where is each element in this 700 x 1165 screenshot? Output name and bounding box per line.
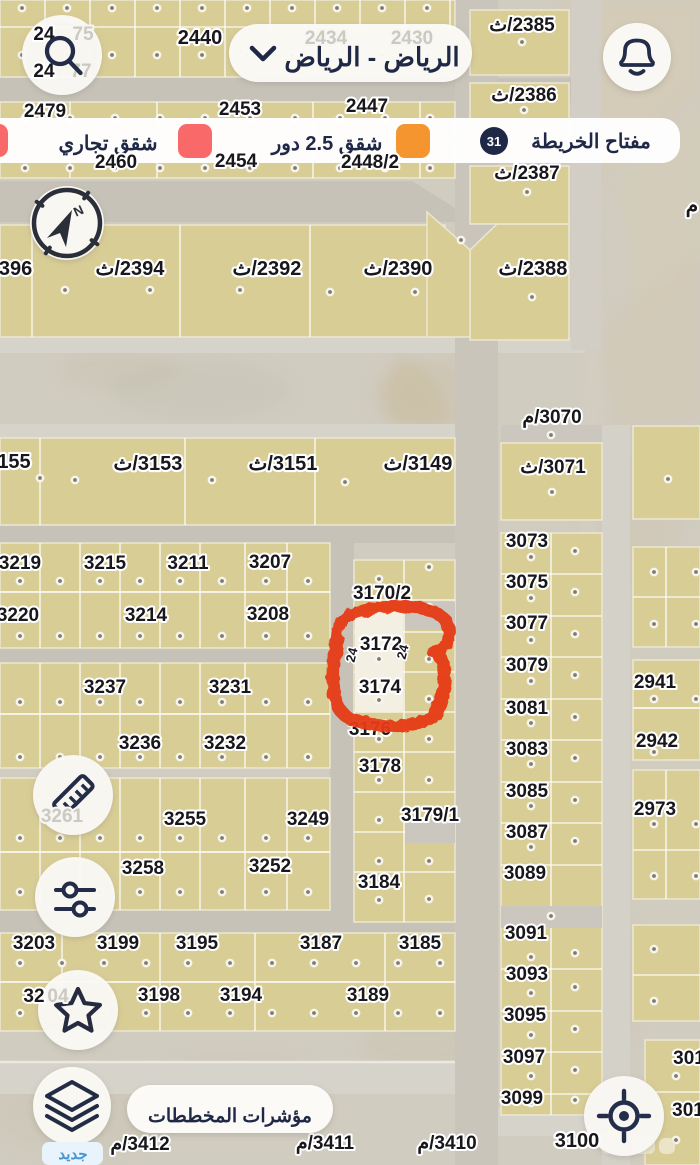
svg-text:ث/3151: ث/3151	[249, 453, 318, 475]
svg-text:3219: 3219	[0, 553, 41, 574]
svg-text:3089: 3089	[504, 863, 546, 884]
svg-text:3255: 3255	[164, 809, 207, 830]
svg-text:301: 301	[673, 1048, 700, 1069]
svg-text:ث/2392: ث/2392	[233, 258, 302, 280]
svg-text:3184: 3184	[358, 872, 401, 893]
svg-text:3194: 3194	[220, 985, 263, 1006]
svg-text:ث/3153: ث/3153	[114, 453, 183, 475]
svg-text:3199: 3199	[97, 933, 139, 954]
svg-text:3261: 3261	[41, 806, 84, 827]
svg-text:3220: 3220	[0, 605, 39, 626]
svg-text:301: 301	[672, 1100, 700, 1121]
svg-text:2440: 2440	[178, 27, 223, 49]
svg-text:مفتاح الخريطة: مفتاح الخريطة	[531, 131, 651, 154]
svg-text:3079: 3079	[506, 655, 548, 676]
svg-text:ث/3149: ث/3149	[384, 453, 453, 475]
svg-text:32: 32	[23, 986, 44, 1007]
svg-text:3075: 3075	[506, 572, 549, 593]
svg-text:3185: 3185	[399, 933, 442, 954]
svg-text:3208: 3208	[247, 604, 289, 625]
svg-text:ث/2390: ث/2390	[364, 258, 433, 280]
svg-text:2434: 2434	[305, 28, 348, 49]
svg-text:3099: 3099	[501, 1088, 543, 1109]
svg-text:ث/2387: ث/2387	[494, 163, 559, 184]
svg-text:3174: 3174	[359, 677, 402, 698]
svg-text:3249: 3249	[287, 809, 329, 830]
svg-text:2973: 2973	[634, 799, 676, 820]
svg-text:م: م	[686, 195, 698, 218]
svg-text:3189: 3189	[347, 985, 389, 1006]
svg-text:3091: 3091	[505, 923, 548, 944]
svg-text:3073: 3073	[506, 531, 548, 552]
svg-text:ث/2388: ث/2388	[499, 258, 568, 280]
svg-text:م/3410: م/3410	[417, 1133, 476, 1154]
svg-text:3093: 3093	[506, 964, 548, 985]
svg-text:3095: 3095	[504, 1005, 547, 1026]
svg-text:2448/2: 2448/2	[341, 152, 399, 173]
svg-text:3232: 3232	[204, 733, 246, 754]
svg-text:75: 75	[72, 24, 94, 45]
svg-text:2396: 2396	[0, 258, 32, 280]
svg-text:ث/2385: ث/2385	[489, 15, 555, 36]
svg-text:3211: 3211	[167, 553, 209, 574]
svg-text:3085: 3085	[506, 781, 549, 802]
svg-text:3231: 3231	[209, 677, 252, 698]
svg-text:3179/1: 3179/1	[401, 805, 460, 826]
svg-text:3100: 3100	[555, 1130, 600, 1152]
svg-text:3252: 3252	[249, 856, 291, 877]
svg-text:مؤشرات المخططات: مؤشرات المخططات	[148, 1106, 312, 1127]
svg-text:م/3070: م/3070	[522, 407, 581, 428]
svg-text:2454: 2454	[215, 151, 258, 172]
svg-text:2942: 2942	[636, 731, 678, 752]
svg-text:ث/3071: ث/3071	[520, 457, 586, 478]
svg-text:3178: 3178	[359, 756, 401, 777]
svg-text:ث/2386: ث/2386	[491, 85, 556, 106]
svg-text:3077: 3077	[506, 613, 548, 634]
svg-text:24: 24	[33, 61, 55, 82]
svg-text:3207: 3207	[249, 552, 291, 573]
svg-text:04: 04	[47, 986, 69, 1007]
svg-text:م/3411: م/3411	[296, 1133, 355, 1154]
svg-text:ث/2394: ث/2394	[96, 258, 166, 280]
svg-text:3083: 3083	[506, 739, 548, 760]
svg-text:3214: 3214	[125, 605, 168, 626]
svg-text:3081: 3081	[506, 698, 549, 719]
svg-text:31: 31	[487, 134, 501, 149]
svg-text:م/3412: م/3412	[110, 1134, 169, 1155]
svg-text:3203: 3203	[13, 933, 55, 954]
svg-text:3187: 3187	[300, 933, 342, 954]
svg-text:3237: 3237	[84, 677, 126, 698]
svg-text:3198: 3198	[138, 985, 180, 1006]
svg-text:3258: 3258	[122, 858, 164, 879]
svg-text:3195: 3195	[176, 933, 219, 954]
svg-text:3236: 3236	[119, 733, 161, 754]
svg-text:2460: 2460	[95, 152, 137, 173]
svg-text:3097: 3097	[503, 1047, 545, 1068]
svg-text:3215: 3215	[84, 553, 127, 574]
svg-text:2430: 2430	[391, 28, 433, 49]
svg-text:155: 155	[0, 451, 31, 473]
svg-text:2447: 2447	[346, 96, 388, 117]
svg-text:2453: 2453	[219, 99, 261, 120]
svg-text:3087: 3087	[506, 822, 548, 843]
svg-text:2941: 2941	[634, 672, 677, 693]
svg-text:جديد: جديد	[58, 1146, 87, 1163]
